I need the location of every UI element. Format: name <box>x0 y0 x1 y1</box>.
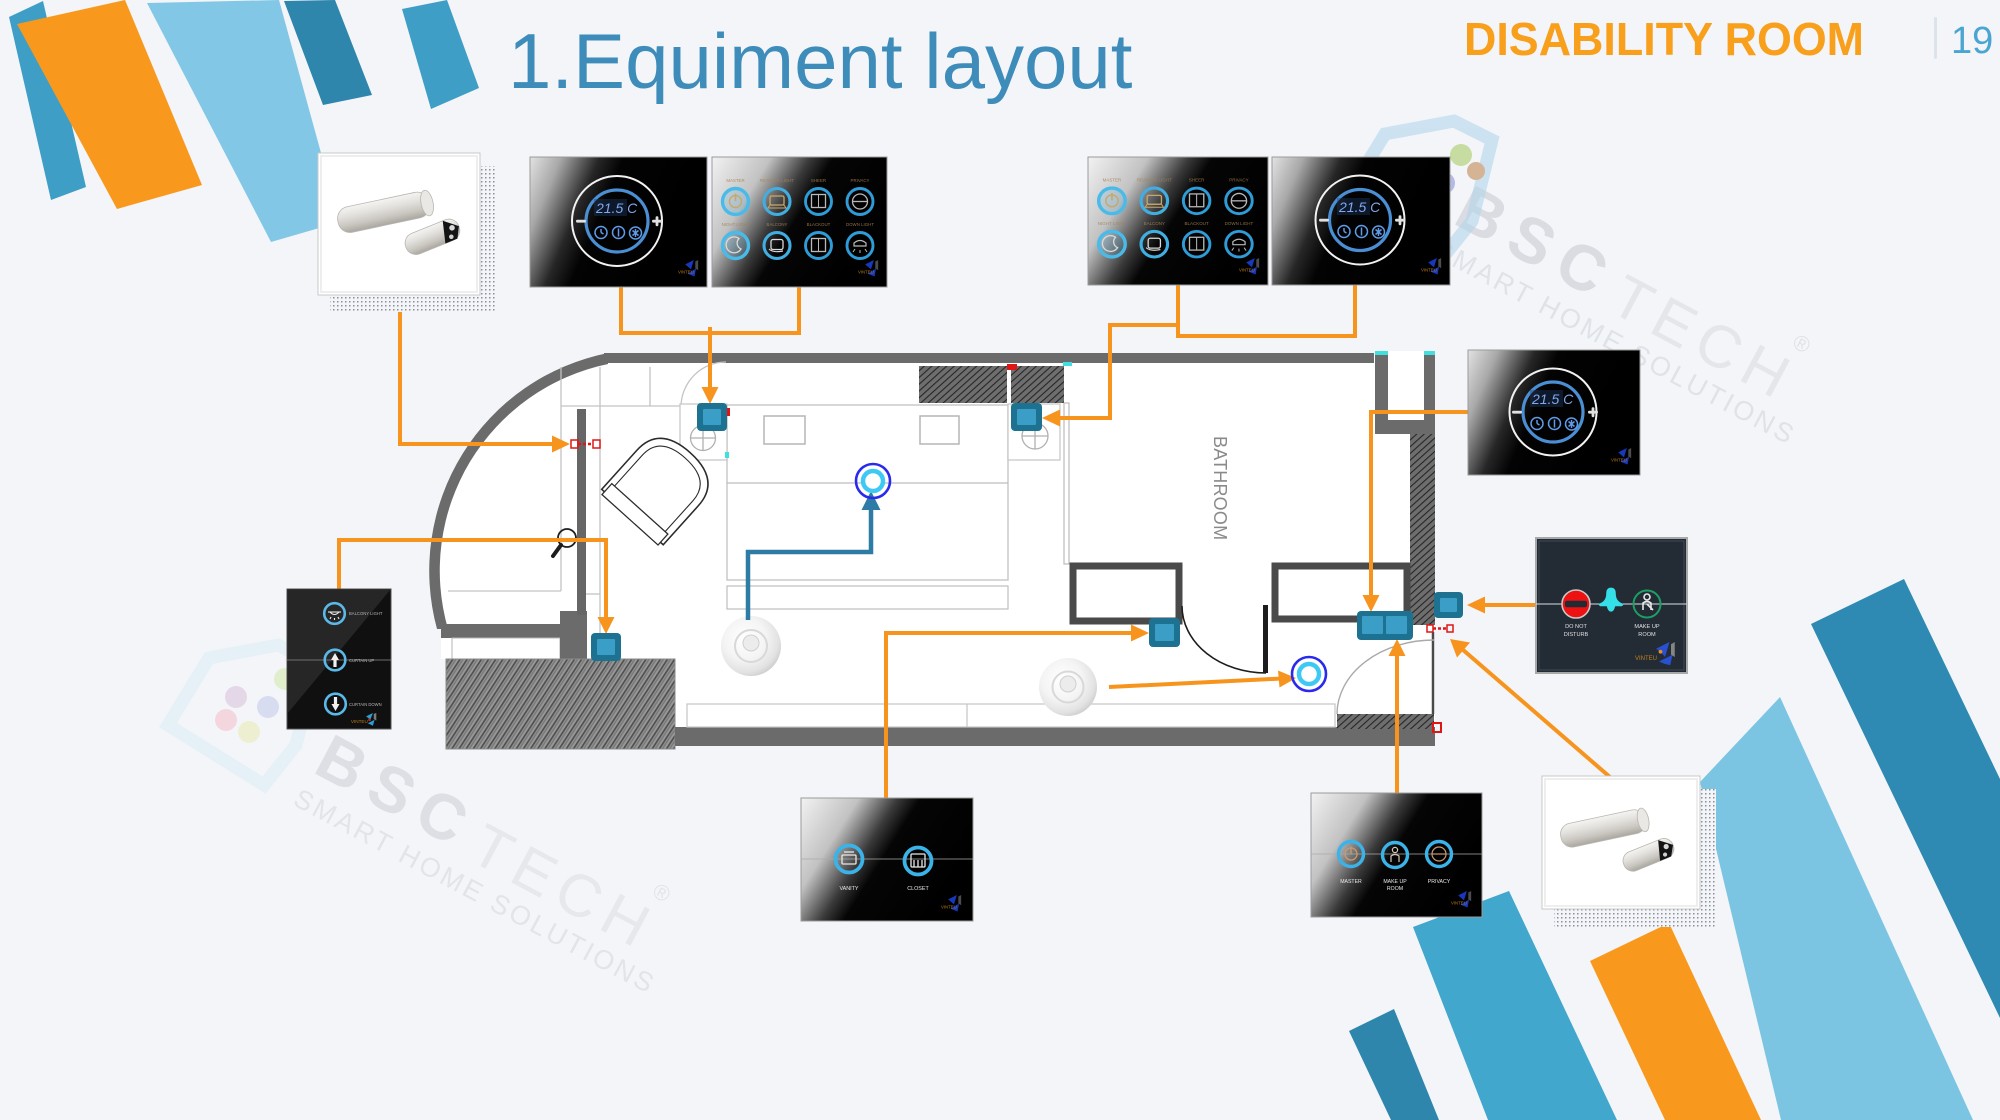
svg-text:MASTER: MASTER <box>1340 879 1362 885</box>
svg-text:19: 19 <box>1951 20 1993 62</box>
svg-text:21.5 C: 21.5 C <box>1531 391 1574 407</box>
svg-text:BALCONY LIGHT: BALCONY LIGHT <box>349 611 383 616</box>
svg-text:MASTER: MASTER <box>726 178 744 183</box>
svg-text:VINTEU: VINTEU <box>1239 268 1255 273</box>
svg-text:1.Equiment layout: 1.Equiment layout <box>508 17 1133 105</box>
svg-text:VINTEU: VINTEU <box>678 270 694 275</box>
svg-text:21.5 C: 21.5 C <box>1338 199 1381 215</box>
svg-text:READING LIGHT: READING LIGHT <box>760 178 794 183</box>
svg-text:DO NOT: DO NOT <box>1565 624 1587 630</box>
svg-text:BATHROOM: BATHROOM <box>1210 436 1230 540</box>
svg-text:MAKE UP: MAKE UP <box>1634 624 1659 630</box>
svg-text:CURTAIN DOWN: CURTAIN DOWN <box>349 702 382 707</box>
svg-text:PRIVACY: PRIVACY <box>1428 879 1451 885</box>
svg-text:ROOM: ROOM <box>1638 632 1656 638</box>
svg-text:DOWN LIGHT: DOWN LIGHT <box>846 222 874 227</box>
svg-text:VINTEU: VINTEU <box>941 905 957 910</box>
svg-text:NIGHT LIGHT: NIGHT LIGHT <box>722 222 750 227</box>
svg-text:MAKE UP: MAKE UP <box>1383 879 1407 885</box>
svg-text:BALCONY: BALCONY <box>767 222 788 227</box>
svg-text:SHEER: SHEER <box>811 178 826 183</box>
svg-text:BLACKOUT: BLACKOUT <box>807 222 831 227</box>
svg-text:VINTEU: VINTEU <box>1611 458 1627 463</box>
svg-text:VINTEU: VINTEU <box>858 270 874 275</box>
svg-text:21.5 C: 21.5 C <box>595 200 638 216</box>
svg-text:DISABILITY ROOM: DISABILITY ROOM <box>1464 13 1864 65</box>
svg-text:PRIVACY: PRIVACY <box>851 178 870 183</box>
svg-text:VINTEU: VINTEU <box>1451 901 1467 906</box>
svg-text:VINTEU: VINTEU <box>351 719 368 724</box>
svg-text:VINTEU: VINTEU <box>1635 656 1657 662</box>
svg-text:CURTAIN UP: CURTAIN UP <box>349 658 374 663</box>
svg-text:VANITY: VANITY <box>839 886 858 892</box>
svg-text:DISTURB: DISTURB <box>1564 632 1589 638</box>
svg-text:ROOM: ROOM <box>1387 886 1403 892</box>
svg-text:CLOSET: CLOSET <box>907 886 929 892</box>
svg-text:VINTEU: VINTEU <box>1421 268 1437 273</box>
